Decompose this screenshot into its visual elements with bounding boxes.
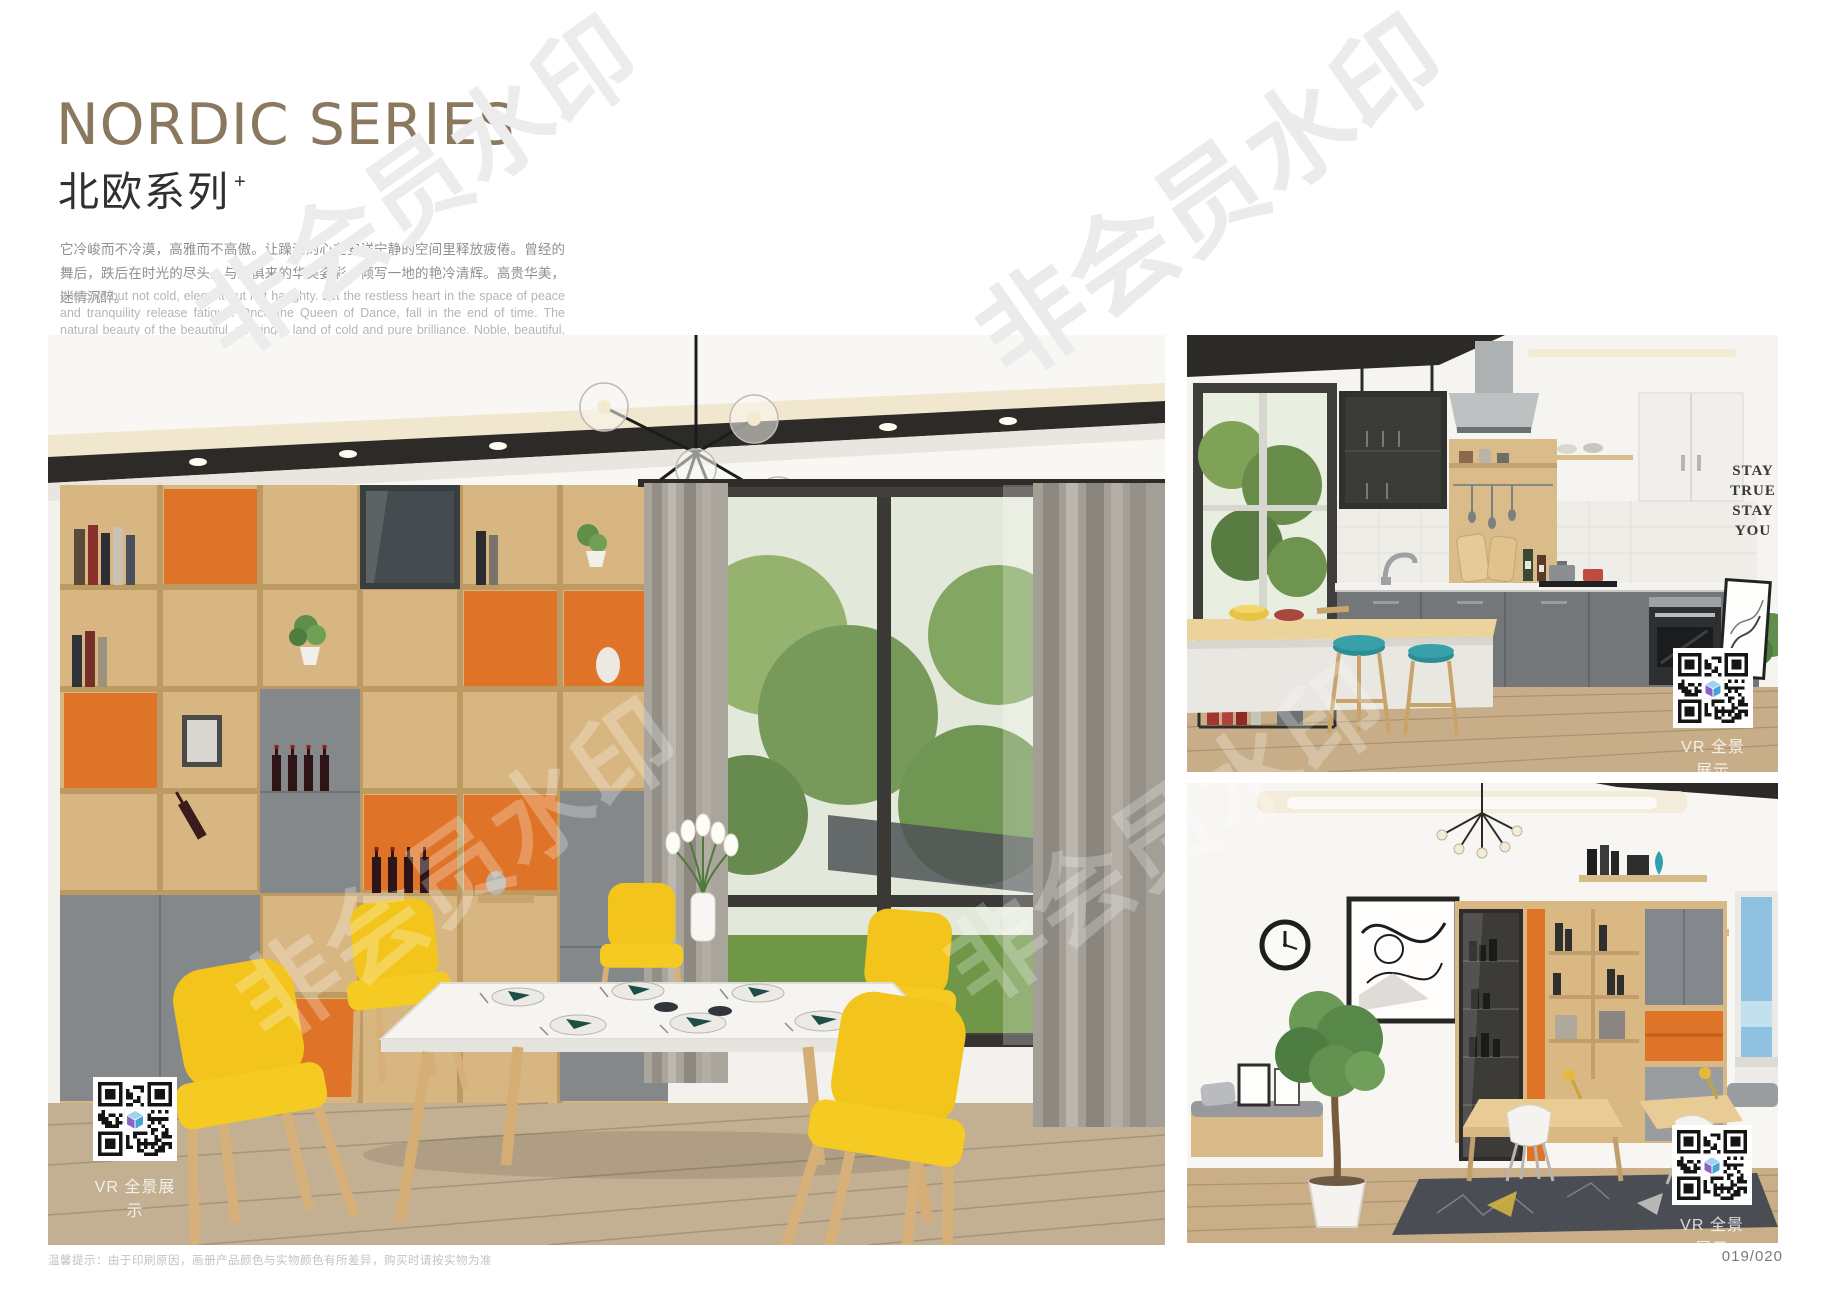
wall-clock	[1262, 922, 1308, 968]
subtitle-plus: +	[234, 171, 248, 193]
vr-label-study: VR 全景展示	[1672, 1211, 1752, 1243]
qr-code-kitchen	[1673, 648, 1753, 728]
window	[1193, 383, 1337, 633]
subtitle-text: 北欧系列	[58, 169, 230, 215]
decal-line: TRUE	[1729, 481, 1777, 501]
footer-disclaimer: 温馨提示：由于印刷原因，画册产品颜色与实物颜色有所差异，购买时请按实物为准	[48, 1252, 492, 1268]
vr-label-dining: VR 全景展示	[93, 1173, 177, 1221]
page-title: NORDIC SERIES	[56, 92, 516, 158]
photo-dining-room: VR 全景展示	[48, 335, 1165, 1245]
decal-line: STAY	[1729, 461, 1777, 481]
catalog-page: NORDIC SERIES 北欧系列+ 它冷峻而不冷漠，高雅而不高傲。让躁动的心…	[0, 0, 1836, 1307]
decal-line: STAY	[1729, 501, 1777, 521]
page-number: 019/020	[1722, 1248, 1783, 1265]
decal-line: YOU	[1729, 521, 1777, 541]
page-subtitle-cn: 北欧系列+	[58, 158, 248, 218]
vr-label-kitchen: VR 全景展示	[1673, 733, 1753, 772]
qr-code-study	[1672, 1125, 1752, 1205]
abstract-art-frame	[1349, 899, 1457, 1021]
photo-kitchen: STAY TRUE STAY YOU VR 全景展示	[1187, 335, 1778, 772]
qr-code-dining	[93, 1077, 177, 1161]
dining-room-scene	[48, 335, 1165, 1245]
wall-decal: STAY TRUE STAY YOU	[1729, 461, 1777, 541]
photo-study-room: VR 全景展示	[1187, 783, 1778, 1243]
